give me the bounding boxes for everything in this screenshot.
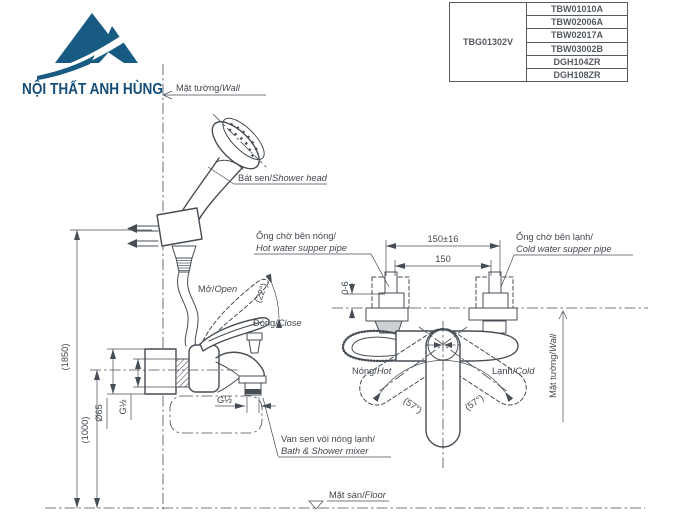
- cold-label: Lạnh/Cold: [492, 366, 535, 376]
- hot-pipe-label: Ống chờ bên nóng/ Hot water supper pipe: [254, 230, 389, 287]
- product-codes-table: TBG01302V TBW01010A TBW02006A TBW02017A …: [449, 2, 628, 82]
- svg-text:Mặt sàn/Floor: Mặt sàn/Floor: [329, 490, 387, 500]
- open-label: Mở/Open: [198, 284, 237, 294]
- related-code: TBW02006A: [527, 16, 627, 29]
- open-angle-arc: [272, 284, 279, 318]
- brand-name: NỘI THẤT ANH HÙNG: [22, 80, 163, 98]
- shower-height-dim: (1850): [60, 344, 70, 371]
- wall-thread-dim: G½: [118, 399, 128, 414]
- related-code: TBW01010A: [527, 3, 627, 16]
- wall-nipple: [176, 359, 190, 387]
- related-code: DGH104ZR: [527, 56, 627, 69]
- shower-handle: [181, 158, 219, 213]
- spray-face-dots: [225, 120, 262, 157]
- brand-logo: NỘI THẤT ANH HÙNG: [22, 13, 163, 98]
- wall-top-label: Mặt tường/Wall: [163, 83, 266, 99]
- svg-text:0-6: 0-6: [340, 281, 350, 294]
- mixer-height-dim: (1000): [80, 417, 90, 444]
- spout: [216, 352, 264, 376]
- svg-text:Ống chờ bên lạnh/: Ống chờ bên lạnh/: [516, 231, 593, 242]
- main-product-code: TBG01302V: [450, 3, 527, 81]
- svg-text:Bath & Shower mixer: Bath & Shower mixer: [281, 446, 369, 456]
- swing-left-label: (57°): [402, 396, 424, 416]
- mixer-body-side: [189, 345, 219, 392]
- span-dim: 150: [435, 254, 451, 264]
- mixer-label: Van sen vòi nóng lạnh/ Bath & Shower mix…: [263, 398, 391, 457]
- svg-text:G½: G½: [217, 395, 232, 405]
- screw-icon: [127, 224, 137, 233]
- svg-text:Cold water supper pipe: Cold water supper pipe: [516, 244, 612, 254]
- svg-text:Van sen vòi nóng lạnh/: Van sen vòi nóng lạnh/: [281, 434, 375, 444]
- svg-text:Bát sen/Shower head: Bát sen/Shower head: [238, 173, 328, 183]
- related-code: DGH108ZR: [527, 69, 627, 81]
- related-code: TBW02017A: [527, 29, 627, 42]
- mixer-front-view: (57°) (57°) Nóng/Hot Lạnh/Cold: [332, 272, 648, 468]
- hot-label: Nóng/Hot: [352, 366, 392, 376]
- svg-text:Mặt tường/Wall: Mặt tường/Wall: [548, 333, 558, 398]
- floor-label: Mặt sàn/Floor: [309, 490, 389, 509]
- spout-thread-dim: G½: [215, 395, 276, 413]
- shower-hose: [172, 246, 198, 348]
- svg-text:Ống chờ bên nóng/: Ống chờ bên nóng/: [256, 230, 336, 241]
- related-codes-column: TBW01010A TBW02006A TBW02017A TBW03002B …: [527, 3, 627, 81]
- close-label: Đóng/Close: [253, 318, 302, 328]
- plate-diameter-dim: Ø65: [94, 404, 104, 422]
- svg-text:Mặt tường/Wall: Mặt tường/Wall: [176, 83, 241, 93]
- screw-icon: [127, 239, 137, 248]
- phantom-tub-outline: [170, 396, 262, 433]
- swing-right-label: (57°): [463, 393, 485, 413]
- cold-supply-pipe: [469, 272, 517, 333]
- related-code: TBW03002B: [527, 43, 627, 56]
- pipe-span-dims: 150±16 150: [386, 234, 500, 276]
- shower-head-label: Bát sen/Shower head: [208, 167, 328, 184]
- diverter-knob: [247, 333, 262, 340]
- svg-text:Hot water supper pipe: Hot water supper pipe: [256, 243, 347, 253]
- wall-bracket: [127, 208, 202, 248]
- shower-head: [181, 104, 277, 221]
- open-angle-label: (22°): [253, 282, 269, 304]
- span-tolerance-dim: 150±16: [428, 234, 459, 244]
- wall-right-label: Mặt tường/Wall: [548, 311, 567, 422]
- spec-sheet: NỘI THẤT ANH HÙNG Mặt tường/Wall: [0, 0, 700, 530]
- cold-pipe-label: Ống chờ bên lạnh/ Cold water supper pipe: [501, 231, 633, 287]
